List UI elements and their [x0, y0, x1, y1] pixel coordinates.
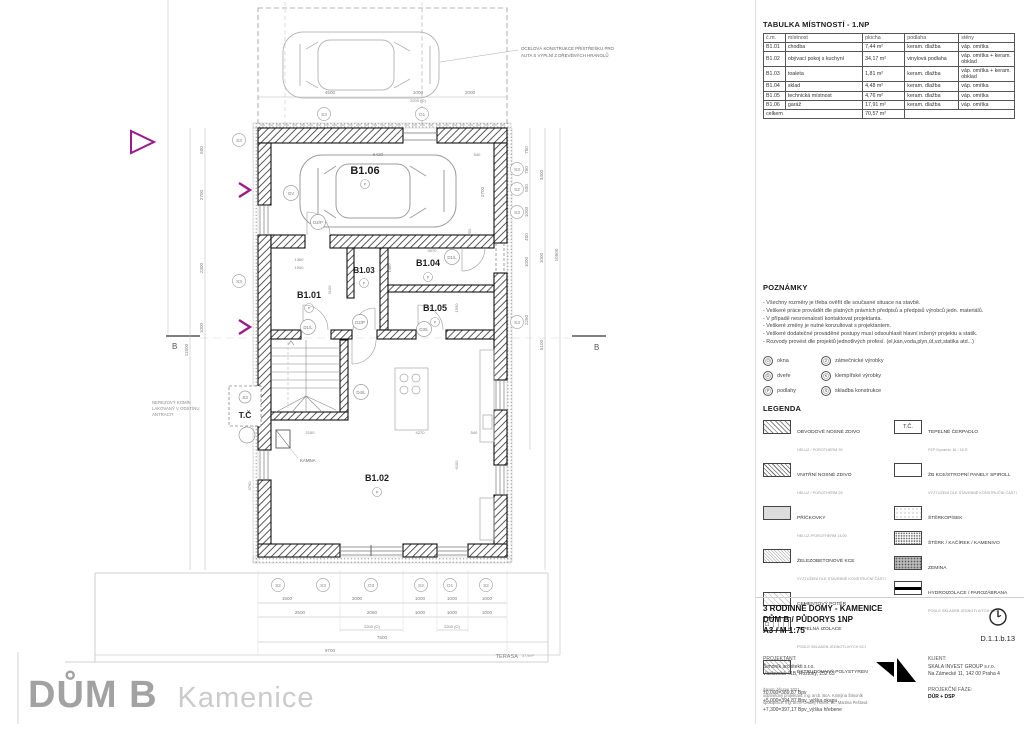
svg-text:D2/P: D2/P	[313, 220, 323, 225]
circle-s-icon: S	[821, 386, 831, 396]
drawing-format: A3 / M 1:75	[763, 626, 882, 637]
room-living: B1.02	[365, 473, 389, 483]
legend-item: ŽB KCE/STROPNÍ PANELY SPIROLLVYZTUŽENÍ D…	[894, 463, 1017, 499]
kitchen	[395, 350, 494, 540]
symbol-klempirske: Kklempířské výrobky	[821, 371, 1015, 381]
hatch-swatch-icon	[763, 420, 791, 434]
phase-value: DÚR + DSP	[928, 694, 1015, 702]
svg-text:P: P	[434, 321, 437, 325]
svg-text:2080: 2080	[367, 610, 378, 615]
svg-text:540: 540	[474, 152, 481, 157]
svg-text:250: 250	[467, 228, 472, 235]
svg-text:1460: 1460	[387, 263, 392, 273]
designer-block: PROJEKTANT: Šimoník architekti s.r.o. Vá…	[763, 656, 868, 706]
circle-z-icon: Z	[821, 356, 831, 366]
drawing-title: DŮM B / PŮDORYS 1NP	[763, 615, 882, 626]
legend-item: OBVODOVÉ NOSNÉ ZDIVOHELUZ / POROTHERM 30	[763, 420, 886, 456]
gravel-sand-swatch-icon	[894, 506, 922, 520]
floor-plan-area: OCELOVÁ KONSTRUKCE PŘÍSTŘEŠKU PRO AUTA S…	[0, 0, 755, 724]
svg-text:1000: 1000	[415, 596, 426, 601]
svg-text:S2: S2	[418, 583, 424, 589]
carport: OCELOVÁ KONSTRUKCE PŘÍSTŘEŠKU PRO AUTA S…	[258, 8, 615, 125]
svg-text:1000: 1000	[524, 206, 529, 217]
table-row: B1.06garáž17,91 m²keram. dlažbaváp. omít…	[764, 100, 1015, 109]
legend-item: ZEMINA	[894, 556, 1017, 574]
dimension-lines	[95, 97, 560, 655]
svg-text:1000: 1000	[482, 596, 493, 601]
section-label-right: B	[594, 343, 599, 352]
gravel-swatch-icon	[894, 531, 922, 545]
entry-arrows	[131, 131, 250, 334]
circle-k-icon: K	[821, 371, 831, 381]
svg-text:D4/L: D4/L	[356, 390, 366, 395]
svg-text:1000: 1000	[482, 610, 493, 615]
svg-text:LAKOVANÝ V ODSTÍNU: LAKOVANÝ V ODSTÍNU	[152, 406, 199, 411]
circle-d-icon: D	[763, 371, 773, 381]
svg-text:S3: S3	[514, 167, 520, 173]
svg-text:1000: 1000	[413, 90, 424, 95]
terrace-area: 37,9m²	[522, 654, 535, 658]
symbol-zamecnicke: Zzámečnické výrobky	[821, 356, 1015, 366]
titleblock-divider	[756, 597, 1024, 598]
svg-text:7500: 7500	[377, 635, 388, 640]
svg-text:750: 750	[524, 166, 529, 174]
svg-text:4270: 4270	[416, 430, 426, 435]
room-toilet: B1.03	[353, 266, 375, 275]
svg-text:500: 500	[524, 184, 529, 192]
right-panel: TABULKA MÍSTNOSTÍ - 1.NP č.m. místnost p…	[755, 0, 1024, 724]
svg-text:D1/L: D1/L	[303, 325, 313, 330]
svg-text:D1/L: D1/L	[447, 255, 457, 260]
svg-text:1000: 1000	[447, 610, 458, 615]
svg-text:2300: 2300	[199, 262, 204, 273]
svg-text:1000: 1000	[447, 596, 458, 601]
level-line: +7,300=397,17 Bpv_výška hřebene	[763, 706, 1017, 714]
svg-text:2500: 2500	[295, 610, 306, 615]
symbol-podlahy: Ppodlahy	[763, 386, 821, 396]
svg-text:P: P	[308, 307, 311, 311]
notes-list: Všechny rozměry je třeba ověřit dle souč…	[763, 300, 1015, 347]
svg-text:1000: 1000	[415, 610, 426, 615]
room-garage: B1.06	[350, 165, 379, 177]
svg-text:3760: 3760	[247, 481, 252, 491]
svg-text:S3: S3	[236, 138, 242, 144]
note-item: Veškeré dodatečné prováděné postupy musí…	[763, 331, 1015, 339]
meta-lines: datum: březen 2021 odpovědný projektant:…	[763, 687, 868, 707]
svg-text:S3: S3	[320, 583, 326, 589]
hatch-swatch-icon	[763, 463, 791, 477]
symbol-legend: Ookna Zzámečnické výrobky Ddveře Kklempí…	[763, 356, 1015, 396]
svg-text:O1: O1	[419, 112, 426, 118]
svg-text:6150: 6150	[454, 460, 459, 470]
svg-text:O1: O1	[447, 583, 454, 589]
notes-title: POZNÁMKY	[763, 283, 1015, 292]
legend-item: ŽELEZOBETONOVÉ KCEVYZTUŽENÍ DLE STAVEBNĚ…	[763, 549, 886, 585]
room-table-section: TABULKA MÍSTNOSTÍ - 1.NP č.m. místnost p…	[763, 20, 1015, 119]
svg-text:750: 750	[524, 146, 529, 154]
svg-text:NEREZOVÝ KOMÍN: NEREZOVÝ KOMÍN	[152, 400, 191, 405]
project-title: 3 RODINNÉ DOMY - KAMENICE	[763, 604, 882, 615]
svg-text:2200 (O): 2200 (O)	[444, 624, 460, 629]
svg-text:3100: 3100	[327, 285, 332, 295]
room-storage: B1.04	[416, 258, 440, 268]
room-utility: B1.05	[423, 303, 447, 313]
room-hall: B1.01	[297, 290, 321, 300]
stove-label: KAMNA	[300, 458, 316, 463]
legend-item: ŠTĚRKOPÍSEK	[894, 506, 1017, 524]
svg-text:1900: 1900	[295, 265, 305, 270]
svg-text:2000: 2000	[465, 90, 476, 95]
svg-text:11500: 11500	[184, 343, 189, 356]
note-item: Veškeré změny je nutné konzultovat s pro…	[763, 323, 1015, 331]
room-table: č.m. místnost plocha podlaha stěny B1.01…	[763, 33, 1015, 119]
svg-text:P: P	[376, 491, 379, 495]
svg-text:2250: 2250	[524, 314, 529, 325]
drawing-number: D.1.1.b.13	[980, 634, 1015, 643]
table-row: B1.04sklad4,48 m²keram. dlažbaváp. omítk…	[764, 82, 1015, 91]
circle-p-icon: P	[763, 386, 773, 396]
svg-text:S3: S3	[514, 320, 520, 326]
note-item: Rozvody provést dle projektů jednotlivýc…	[763, 339, 1015, 347]
terrace	[65, 573, 548, 662]
north-clock-icon	[988, 607, 1008, 627]
fine-hatch-swatch-icon	[763, 549, 791, 563]
svg-text:S2: S2	[514, 187, 520, 193]
legend-item: T.Č.TEPELNÉ ČERPADLOPZP Dynamic 16 / 16 …	[894, 420, 1017, 456]
svg-text:540: 540	[471, 430, 478, 435]
note-item: Veškeré práce provádět dle platných práv…	[763, 308, 1015, 316]
svg-text:1500: 1500	[282, 596, 293, 601]
legend-item: PŘÍČKOVKYHELUZ /POROTHERM 14/20	[763, 506, 886, 542]
title-block: 3 RODINNÉ DOMY - KAMENICE DŮM B / PŮDORY…	[763, 604, 1015, 706]
table-row: B1.02obývací pokoj s kuchyní34,17 m²viny…	[764, 52, 1015, 67]
svg-text:3400: 3400	[539, 169, 544, 180]
legend-item: ŠTĚRK / KAČÍREK / KAMENIVO	[894, 531, 1017, 549]
svg-text:6420: 6420	[373, 152, 384, 157]
heat-pump-swatch-icon: T.Č.	[894, 420, 922, 434]
svg-text:2700: 2700	[199, 189, 204, 200]
note-item: V případě nesrovnalostí kontaktovat proj…	[763, 316, 1015, 324]
symbol-okna: Ookna	[763, 356, 821, 366]
drawing-titles: 3 RODINNÉ DOMY - KAMENICE DŮM B / PŮDORY…	[763, 604, 882, 643]
house-name: DŮM B	[28, 674, 158, 717]
legend-item: VNITŘNÍ NOSNÉ ZDIVOHELUZ / POROTHERM 25	[763, 463, 886, 499]
table-row: B1.03toaleta1,81 m²keram. dlažbaváp. omí…	[764, 67, 1015, 82]
svg-text:10500: 10500	[554, 248, 559, 261]
soil-swatch-icon	[894, 556, 922, 570]
svg-text:9700: 9700	[325, 648, 336, 653]
car-top-view-carport	[283, 32, 439, 98]
symbol-skladba: Sskladba konstrukce	[821, 386, 1015, 396]
room-table-header-row: č.m. místnost plocha podlaha stěny	[764, 34, 1015, 43]
white-swatch-icon	[894, 463, 922, 477]
svg-text:D3/L: D3/L	[419, 327, 429, 332]
svg-text:5100: 5100	[539, 339, 544, 350]
floor-plan-svg: OCELOVÁ KONSTRUKCE PŘÍSTŘEŠKU PRO AUTA S…	[0, 0, 755, 724]
svg-text:3000: 3000	[352, 596, 363, 601]
svg-text:S3: S3	[514, 210, 520, 216]
note-item: Všechny rozměry je třeba ověřit dle souč…	[763, 300, 1015, 308]
svg-text:2200 (O): 2200 (O)	[364, 624, 380, 629]
waterproofing-swatch-icon	[894, 581, 922, 595]
notes-section: POZNÁMKY Všechny rozměry je třeba ověřit…	[763, 283, 1015, 396]
drawing-number-block: D.1.1.b.13	[980, 607, 1015, 643]
svg-text:4500: 4500	[325, 90, 336, 95]
svg-text:1000: 1000	[199, 322, 204, 333]
svg-text:1550: 1550	[454, 303, 459, 313]
svg-text:S2: S2	[483, 583, 489, 589]
site-name: Kamenice	[178, 682, 315, 715]
circle-o-icon: O	[763, 356, 773, 366]
table-row: B1.01chodba7,44 m²keram. dlažbaváp. omít…	[764, 43, 1015, 52]
table-total-row: celkem 70,57 m²	[764, 109, 1015, 118]
svg-text:2150: 2150	[306, 430, 316, 435]
client-block: KLIENT: SKALA INVEST GROUP s.r.o. Na Zám…	[928, 656, 1015, 706]
gv-marker: GV	[288, 191, 294, 196]
svg-text:500: 500	[199, 146, 204, 154]
svg-text:P: P	[427, 276, 430, 280]
svg-text:3070: 3070	[428, 248, 438, 253]
section-label-left: B	[172, 342, 177, 351]
heat-pump-label: T.Č	[239, 409, 252, 420]
table-row: B1.05technická místnost4,76 m²keram. dla…	[764, 91, 1015, 100]
symbol-dvere: Ddveře	[763, 371, 821, 381]
svg-text:1000: 1000	[524, 256, 529, 267]
solid-swatch-icon	[763, 506, 791, 520]
svg-text:P: P	[363, 282, 366, 286]
svg-text:400: 400	[524, 233, 529, 241]
terrace-label: TERASA	[496, 654, 519, 660]
svg-text:O3: O3	[368, 583, 375, 589]
sheet-footer: DŮM B Kamenice	[28, 674, 315, 717]
svg-text:2200 (O): 2200 (O)	[410, 98, 426, 103]
svg-text:S3: S3	[236, 279, 242, 285]
legend-title: LEGENDA	[763, 404, 1017, 413]
carport-note-line1: OCELOVÁ KONSTRUKCE PŘÍSTŘEŠKU PRO	[521, 46, 615, 51]
staircase	[271, 340, 340, 412]
chimney-note: NEREZOVÝ KOMÍN LAKOVANÝ V ODSTÍNU ANTRAC…	[152, 400, 199, 417]
carport-note-line2: AUTA S VÝPLNÍ Z DŘEVĚNÝCH HRANOLŮ	[521, 53, 609, 58]
architect-logo	[874, 656, 922, 706]
svg-text:D2/P: D2/P	[355, 320, 365, 325]
svg-text:1000: 1000	[539, 252, 544, 263]
heat-pump-s3: S3	[242, 395, 248, 400]
svg-text:ANTRACIT: ANTRACIT	[152, 412, 174, 417]
svg-text:1360: 1360	[295, 257, 305, 262]
svg-text:S2: S2	[275, 583, 281, 589]
room-table-title: TABULKA MÍSTNOSTÍ - 1.NP	[763, 20, 1015, 29]
svg-text:P: P	[364, 183, 367, 187]
svg-text:S3: S3	[321, 112, 327, 118]
svg-text:2700: 2700	[480, 186, 485, 197]
